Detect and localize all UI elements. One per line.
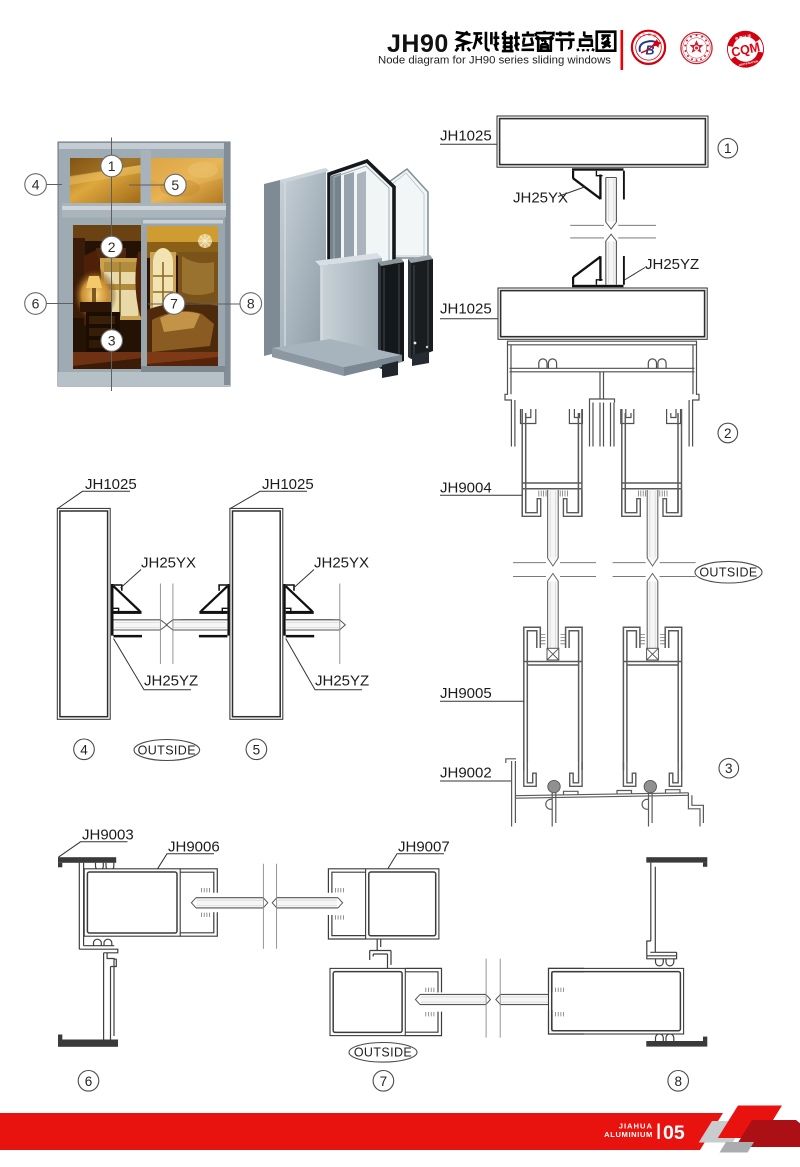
svg-text:JH1025: JH1025	[85, 476, 137, 493]
svg-text:JH1025: JH1025	[440, 301, 492, 318]
svg-text:JH25YX: JH25YX	[314, 555, 369, 572]
svg-text:JH25YZ: JH25YZ	[315, 673, 369, 690]
svg-text:1: 1	[724, 141, 732, 156]
svg-text:3: 3	[725, 761, 733, 776]
svg-text:6: 6	[32, 296, 40, 312]
svg-text:7: 7	[170, 296, 178, 312]
svg-text:JH9002: JH9002	[440, 765, 492, 782]
svg-text:JH25YX: JH25YX	[141, 555, 196, 572]
svg-text:JH1025: JH1025	[440, 128, 492, 145]
svg-text:5: 5	[253, 742, 261, 757]
svg-text:名: 名	[648, 31, 651, 36]
svg-text:7: 7	[380, 1074, 388, 1089]
svg-text:3: 3	[108, 333, 116, 349]
svg-text:1: 1	[108, 158, 116, 174]
svg-text:JH9007: JH9007	[398, 839, 450, 856]
svg-text:JH9003: JH9003	[82, 827, 134, 844]
svg-text:OUTSIDE: OUTSIDE	[354, 1046, 412, 1060]
svg-text:JH1025: JH1025	[262, 476, 314, 493]
svg-text:5: 5	[171, 177, 179, 193]
svg-text:JH9006: JH9006	[168, 839, 220, 856]
svg-text:JH25YX: JH25YX	[513, 190, 568, 207]
svg-text:8: 8	[674, 1074, 682, 1089]
svg-text:ALUMINIUM: ALUMINIUM	[604, 1130, 653, 1139]
svg-text:6: 6	[85, 1074, 93, 1089]
svg-text:8: 8	[247, 296, 255, 312]
svg-text:4: 4	[32, 177, 40, 193]
svg-text:JH25YZ: JH25YZ	[645, 256, 699, 273]
svg-text:Node diagram for JH90 series s: Node diagram for JH90 series sliding win…	[378, 55, 612, 67]
svg-text:OUTSIDE: OUTSIDE	[699, 566, 757, 580]
svg-text:OUTSIDE: OUTSIDE	[138, 743, 196, 757]
svg-text:2: 2	[724, 426, 732, 441]
svg-text:东: 东	[642, 32, 645, 37]
svg-text:JH9005: JH9005	[440, 685, 492, 702]
svg-text:2: 2	[108, 239, 116, 255]
svg-text:05: 05	[663, 1122, 685, 1144]
svg-text:牌: 牌	[653, 33, 656, 38]
svg-text:JH25YZ: JH25YZ	[144, 673, 198, 690]
svg-text:广: 广	[638, 34, 641, 39]
svg-text:4: 4	[80, 742, 88, 757]
svg-text:JH9004: JH9004	[440, 480, 492, 497]
